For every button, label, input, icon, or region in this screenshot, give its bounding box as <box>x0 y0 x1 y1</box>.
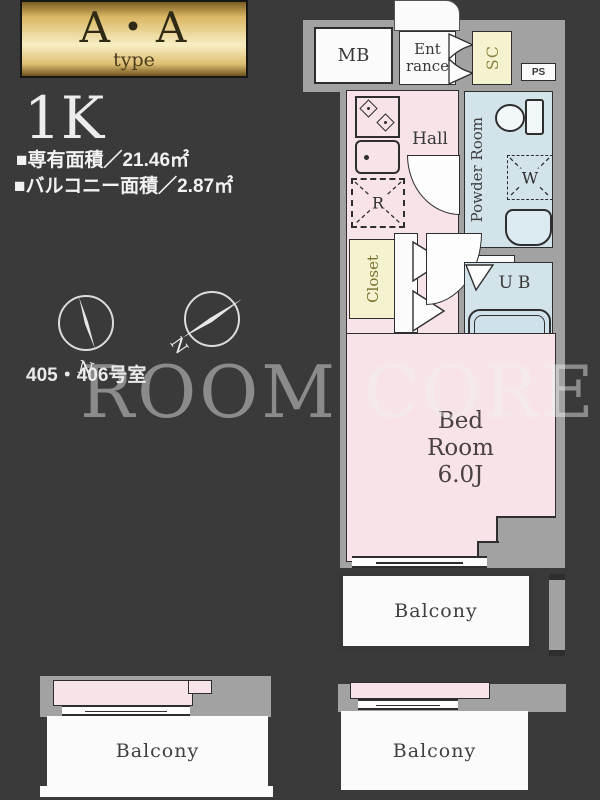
closet-room: Closet <box>349 239 397 319</box>
compass-icon: N <box>170 286 254 364</box>
ub-door-icon <box>465 264 495 292</box>
balcony-bottom-left-label: Balcony <box>116 740 199 762</box>
washer-label: W <box>520 168 540 187</box>
closet-label: Closet <box>364 255 382 303</box>
balcony-bottom-right-label: Balcony <box>393 740 476 762</box>
balcony-center: Balcony <box>338 571 534 651</box>
wash-basin-icon <box>505 209 552 246</box>
balcony-bottom-left: Balcony <box>47 716 268 786</box>
compass-north-label: N <box>170 333 192 358</box>
stove-dot-icon <box>367 107 370 110</box>
bedroom-notch <box>496 516 556 562</box>
shoe-closet-room: SC <box>472 31 512 85</box>
neighbor-room-slice <box>350 682 490 699</box>
pipe-space-room: PS <box>521 63 556 81</box>
meter-box-label: MB <box>338 45 370 66</box>
entrance-label-line1: Ent <box>414 41 441 58</box>
pipe-space-label: PS <box>532 67 545 78</box>
bedroom-label-line2: Room <box>427 435 494 462</box>
compass-north-label: N <box>76 357 96 380</box>
hall-label: Hall <box>412 129 448 149</box>
balcony-area-label: ■バルコニー面積／2.87㎡ <box>14 171 233 198</box>
bedroom-label-line1: Bed <box>438 408 483 435</box>
entrance-walkway <box>394 0 460 31</box>
entrance-door-icon <box>447 33 475 85</box>
stove-dot-icon <box>384 121 387 124</box>
meter-box-room: MB <box>314 27 393 84</box>
stove-icon <box>355 96 400 138</box>
hall-label-wrap: Hall <box>404 128 456 150</box>
balcony-divider-wall <box>549 574 565 656</box>
window-icon <box>62 705 190 716</box>
balcony-bottom-right: Balcony <box>341 711 528 790</box>
neighbor-room-step <box>188 680 212 694</box>
toilet-icon <box>493 97 555 137</box>
entrance-label-line2: rance <box>406 58 449 75</box>
window-icon <box>358 699 458 710</box>
ub-label: UB <box>499 273 536 293</box>
refrigerator-icon: R <box>351 178 405 228</box>
type-badge: A・A type <box>20 0 248 78</box>
kitchen-sink-icon <box>355 140 400 174</box>
shoe-closet-label: SC <box>483 45 502 70</box>
bedroom-label-line3: 6.0J <box>438 462 484 489</box>
type-badge-subtitle: type <box>113 49 155 71</box>
neighbor-room-slice <box>53 680 193 706</box>
type-badge-title: A・A <box>80 8 189 48</box>
ub-label-wrap: UB <box>492 272 542 294</box>
powder-room-label-wrap: Powder Room <box>466 96 488 244</box>
balcony-ledge <box>40 786 273 797</box>
washer-icon: W <box>507 155 553 200</box>
sink-drain-icon <box>364 155 369 160</box>
compass-icon: N <box>52 286 124 380</box>
floorplan-page: A・A type 1K ■専有面積／21.46㎡ ■バルコニー面積／2.87㎡ … <box>0 0 600 800</box>
exclusive-area-label: ■専有面積／21.46㎡ <box>16 145 189 172</box>
layout-type-label: 1K <box>24 84 104 152</box>
window-icon <box>352 556 487 568</box>
balcony-center-label: Balcony <box>394 600 477 622</box>
bedroom-label-wrap: Bed Room 6.0J <box>398 403 523 493</box>
powder-room-label: Powder Room <box>468 117 486 222</box>
refrigerator-label: R <box>370 194 386 213</box>
